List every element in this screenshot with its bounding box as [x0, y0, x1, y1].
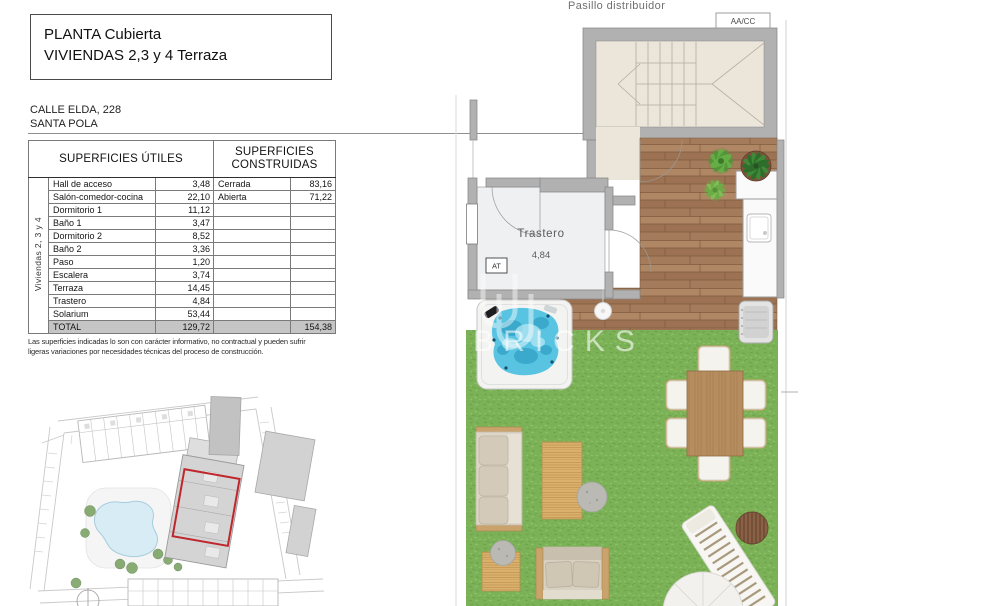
table-row: Solarium 53,44	[29, 308, 336, 321]
header-construidas-line2: CONSTRUIDAS	[215, 159, 334, 172]
room-area: 1,20	[156, 256, 214, 269]
built-area	[291, 204, 336, 217]
table-row: Baño 1 3,47	[29, 217, 336, 230]
room-label: Trastero	[49, 295, 156, 308]
round-wood-table	[736, 512, 768, 544]
sofa-three-seat	[476, 427, 522, 531]
room-area: 53,44	[156, 308, 214, 321]
built-label: Cerrada	[214, 178, 291, 191]
room-area: 11,12	[156, 204, 214, 217]
table-row: Dormitorio 2 8,52	[29, 230, 336, 243]
areas-table: SUPERFICIES ÚTILES SUPERFICIES CONSTRUID…	[28, 140, 336, 334]
room-area: 4,84	[156, 295, 214, 308]
coffee-table	[542, 442, 582, 519]
room-area: 14,45	[156, 282, 214, 295]
sink	[747, 214, 771, 242]
room-label: Salón-comedor-cocina	[49, 191, 156, 204]
table-row: Dormitorio 1 11,12	[29, 204, 336, 217]
address-street: CALLE ELDA, 228	[30, 103, 121, 117]
built-label	[214, 282, 291, 295]
built-area	[291, 230, 336, 243]
header-construidas-line1: SUPERFICIES	[215, 146, 334, 159]
total-construidas-value: 154,38	[291, 321, 336, 334]
disclaimer-line2: ligeras variaciones por necesidades técn…	[28, 347, 358, 357]
disclaimer: Las superficies indicadas lo son con car…	[28, 337, 358, 357]
built-area	[291, 282, 336, 295]
built-label	[214, 243, 291, 256]
dining-table	[687, 371, 743, 456]
room-label: Paso	[49, 256, 156, 269]
storage-room-label: Trastero	[517, 228, 564, 240]
total-utiles-value: 129,72	[156, 321, 214, 334]
table-row: Escalera 3,74	[29, 269, 336, 282]
deck-right-wall	[777, 140, 784, 298]
room-area: 3,74	[156, 269, 214, 282]
room-label: Dormitorio 1	[49, 204, 156, 217]
bbq-grill	[739, 301, 773, 343]
group-label: Viviendas 2, 3 y 4	[34, 217, 43, 291]
plant	[704, 179, 726, 201]
built-label	[214, 204, 291, 217]
site-rowhouses-bottom	[128, 579, 278, 606]
header-superficies-utiles: SUPERFICIES ÚTILES	[29, 141, 214, 178]
table-total-row: TOTAL 129,72 154,38	[29, 321, 336, 334]
plan-sheet: PLANTA Cubierta VIVIENDAS 2,3 y 4 Terraz…	[0, 0, 1001, 606]
built-label	[214, 308, 291, 321]
table-row: Terraza 14,45	[29, 282, 336, 295]
built-label	[214, 269, 291, 282]
table-header-row: SUPERFICIES ÚTILES SUPERFICIES CONSTRUID…	[29, 141, 336, 178]
address-block: CALLE ELDA, 228 SANTA POLA	[30, 103, 121, 131]
room-label: Terraza	[49, 282, 156, 295]
site-target-building	[165, 437, 247, 568]
corridor-label: Pasillo distribuidor	[568, 0, 665, 12]
stone-pouf	[491, 541, 516, 566]
ac-unit-label: AA/CC	[731, 17, 756, 26]
total-label: TOTAL	[49, 321, 156, 334]
table-row: Salón-comedor-cocina 22,10 Abierta 71,22	[29, 191, 336, 204]
sofa-two-seat	[536, 547, 609, 599]
built-area: 83,16	[291, 178, 336, 191]
header-superficies-construidas: SUPERFICIES CONSTRUIDAS	[214, 141, 336, 178]
plant	[708, 148, 734, 174]
floor-plan: Trastero 4,84 AT	[440, 0, 801, 606]
stair-room	[583, 28, 777, 140]
room-label: Baño 1	[49, 217, 156, 230]
plan-title-line2: VIVIENDAS 2,3 y 4 Terraza	[44, 45, 331, 66]
address-city: SANTA POLA	[30, 117, 121, 131]
storage-window	[467, 204, 478, 244]
built-area	[291, 217, 336, 230]
table-row: Viviendas 2, 3 y 4 Hall de acceso 3,48 C…	[29, 178, 336, 191]
built-area	[291, 295, 336, 308]
plant-in-pot	[741, 151, 771, 181]
built-label	[214, 230, 291, 243]
table-row: Trastero 4,84	[29, 295, 336, 308]
watermark-text: BRICKS	[473, 325, 645, 358]
room-area: 3,48	[156, 178, 214, 191]
storage-room-area: 4,84	[532, 250, 551, 261]
room-label: Solarium	[49, 308, 156, 321]
at-box-label: AT	[492, 262, 501, 271]
built-label	[214, 256, 291, 269]
built-area	[291, 269, 336, 282]
corridor-floor	[596, 127, 640, 180]
built-label	[214, 217, 291, 230]
built-area: 71,22	[291, 191, 336, 204]
room-area: 3,47	[156, 217, 214, 230]
built-label	[214, 295, 291, 308]
plan-title-line1: PLANTA Cubierta	[44, 24, 331, 45]
disclaimer-line1: Las superficies indicadas lo son con car…	[28, 337, 358, 347]
built-area	[291, 308, 336, 321]
room-area: 8,52	[156, 230, 214, 243]
built-area	[291, 256, 336, 269]
total-spacer	[214, 321, 291, 334]
built-area	[291, 243, 336, 256]
room-area: 22,10	[156, 191, 214, 204]
faucet	[763, 231, 767, 235]
site-location-plan	[28, 383, 335, 606]
title-box: PLANTA Cubierta VIVIENDAS 2,3 y 4 Terraz…	[30, 14, 332, 80]
table-row: Baño 2 3,36	[29, 243, 336, 256]
room-label: Escalera	[49, 269, 156, 282]
table-row: Paso 1,20	[29, 256, 336, 269]
room-label: Hall de acceso	[49, 178, 156, 191]
site-compass	[77, 588, 99, 606]
stone-pouf	[577, 482, 607, 512]
room-area: 3,36	[156, 243, 214, 256]
room-label: Dormitorio 2	[49, 230, 156, 243]
room-label: Baño 2	[49, 243, 156, 256]
built-label: Abierta	[214, 191, 291, 204]
wall-stub	[470, 100, 477, 140]
group-label-cell: Viviendas 2, 3 y 4	[29, 178, 49, 334]
